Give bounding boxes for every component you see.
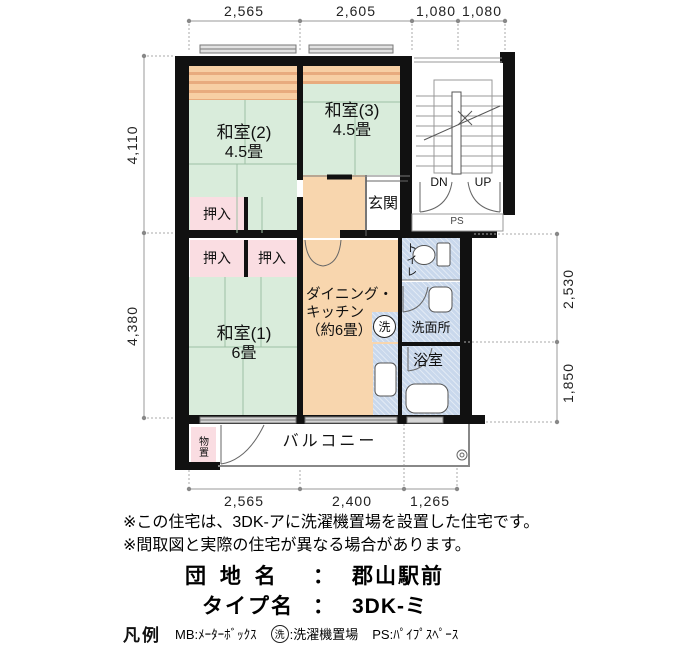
legend-mb: MB:ﾒｰﾀｰﾎﾞｯｸｽ (175, 624, 257, 643)
dimension-bottom-0: 2,565 (204, 493, 284, 509)
estate-name-sep: ： (313, 560, 334, 590)
dimension-left-0: 4,110 (124, 105, 140, 185)
dk-label-line1: ダイニング・ (306, 286, 398, 304)
room-washitsu1-label: 和室(1) 6畳 (194, 323, 294, 364)
legend-title: 凡例 (123, 621, 161, 646)
floorplan-page: 和室(2) 4.5畳 和室(3) 4.5畳 和室(1) 6畳 ダイニング・ キッ… (0, 0, 700, 650)
dimension-left-1: 4,380 (124, 286, 140, 366)
balcony-label: バルコニー (240, 432, 420, 452)
dimension-bottom-2: 1,265 (390, 493, 470, 509)
type-name-sep: ： (313, 590, 334, 620)
estate-name-label: 団 地 名 (185, 560, 280, 590)
room-washitsu2-label: 和室(2) 4.5畳 (194, 122, 294, 163)
estate-name-value: 郡山駅前 (352, 560, 444, 590)
stairs-down-label: DN (424, 175, 454, 190)
legend-row: 凡例 MB:ﾒｰﾀｰﾎﾞｯｸｽ 洗 :洗濯機置場 PS:ﾊﾟｲﾌﾟｽﾍﾟｰｽ (123, 621, 458, 646)
dimension-top-0: 2,565 (204, 3, 284, 19)
dimension-right-0: 2,530 (560, 249, 576, 329)
room-washitsu3-name: 和室(3) (302, 100, 402, 121)
oshiire-b-label: 押入 (190, 250, 244, 268)
pipe-space-label: PS (442, 216, 472, 229)
room-washitsu1-size: 6畳 (194, 344, 294, 364)
dimension-bottom-1: 2,400 (312, 493, 392, 509)
dimension-top-3: 1,080 (452, 3, 512, 19)
oshiire-a-label: 押入 (190, 206, 244, 224)
oshiire-c-label: 押入 (247, 250, 297, 268)
room-washitsu1-name: 和室(1) (194, 323, 294, 344)
legend-ps: PS:ﾊﾟｲﾌﾟｽﾍﾟｰｽ (372, 624, 458, 643)
room-washitsu2-name: 和室(2) (194, 122, 294, 143)
genkan-label: 玄関 (366, 195, 400, 214)
type-name-value: 3DK-ミ (352, 590, 427, 620)
type-name-label: タイプ名 (202, 590, 294, 620)
laundry-symbol: 洗 (373, 315, 396, 338)
room-washitsu3-size: 4.5畳 (302, 121, 402, 141)
toilet-label: トイレ (403, 242, 417, 278)
legend-laundry-desc: :洗濯機置場 (290, 624, 359, 643)
note-line-1: ※この住宅は、3DK-アに洗濯機置場を設置した住宅です。 (123, 508, 539, 532)
storage-label: 物置 (195, 430, 208, 464)
room-washitsu2-size: 4.5畳 (194, 143, 294, 163)
legend-laundry-icon: 洗 (271, 625, 289, 643)
washroom-label: 洗面所 (402, 320, 460, 336)
room-washitsu3-label: 和室(3) 4.5畳 (302, 100, 402, 141)
bath-label: 浴室 (402, 352, 454, 371)
stairs-up-label: UP (468, 175, 498, 190)
note-line-2: ※間取図と実際の住宅が異なる場合があります。 (123, 531, 471, 555)
legend-laundry: 洗 :洗濯機置場 (271, 624, 359, 643)
dimension-right-1: 1,850 (560, 343, 576, 423)
dimension-top-1: 2,605 (316, 3, 396, 19)
